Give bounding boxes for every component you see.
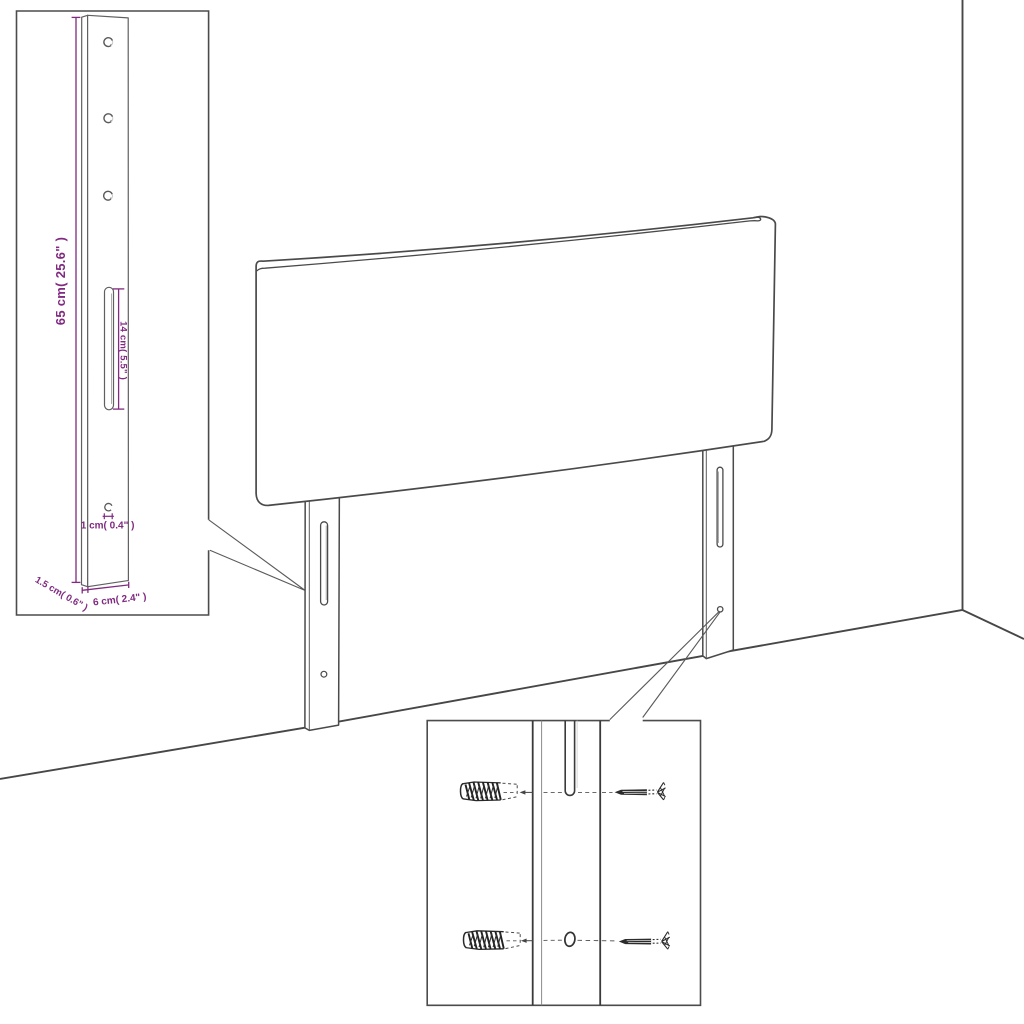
svg-text:65 cm( 25.6" ): 65 cm( 25.6" ) [53,237,68,325]
svg-text:1 cm( 0.4" ): 1 cm( 0.4" ) [81,521,135,532]
svg-text:14 cm( 5.5" ): 14 cm( 5.5" ) [117,321,128,380]
